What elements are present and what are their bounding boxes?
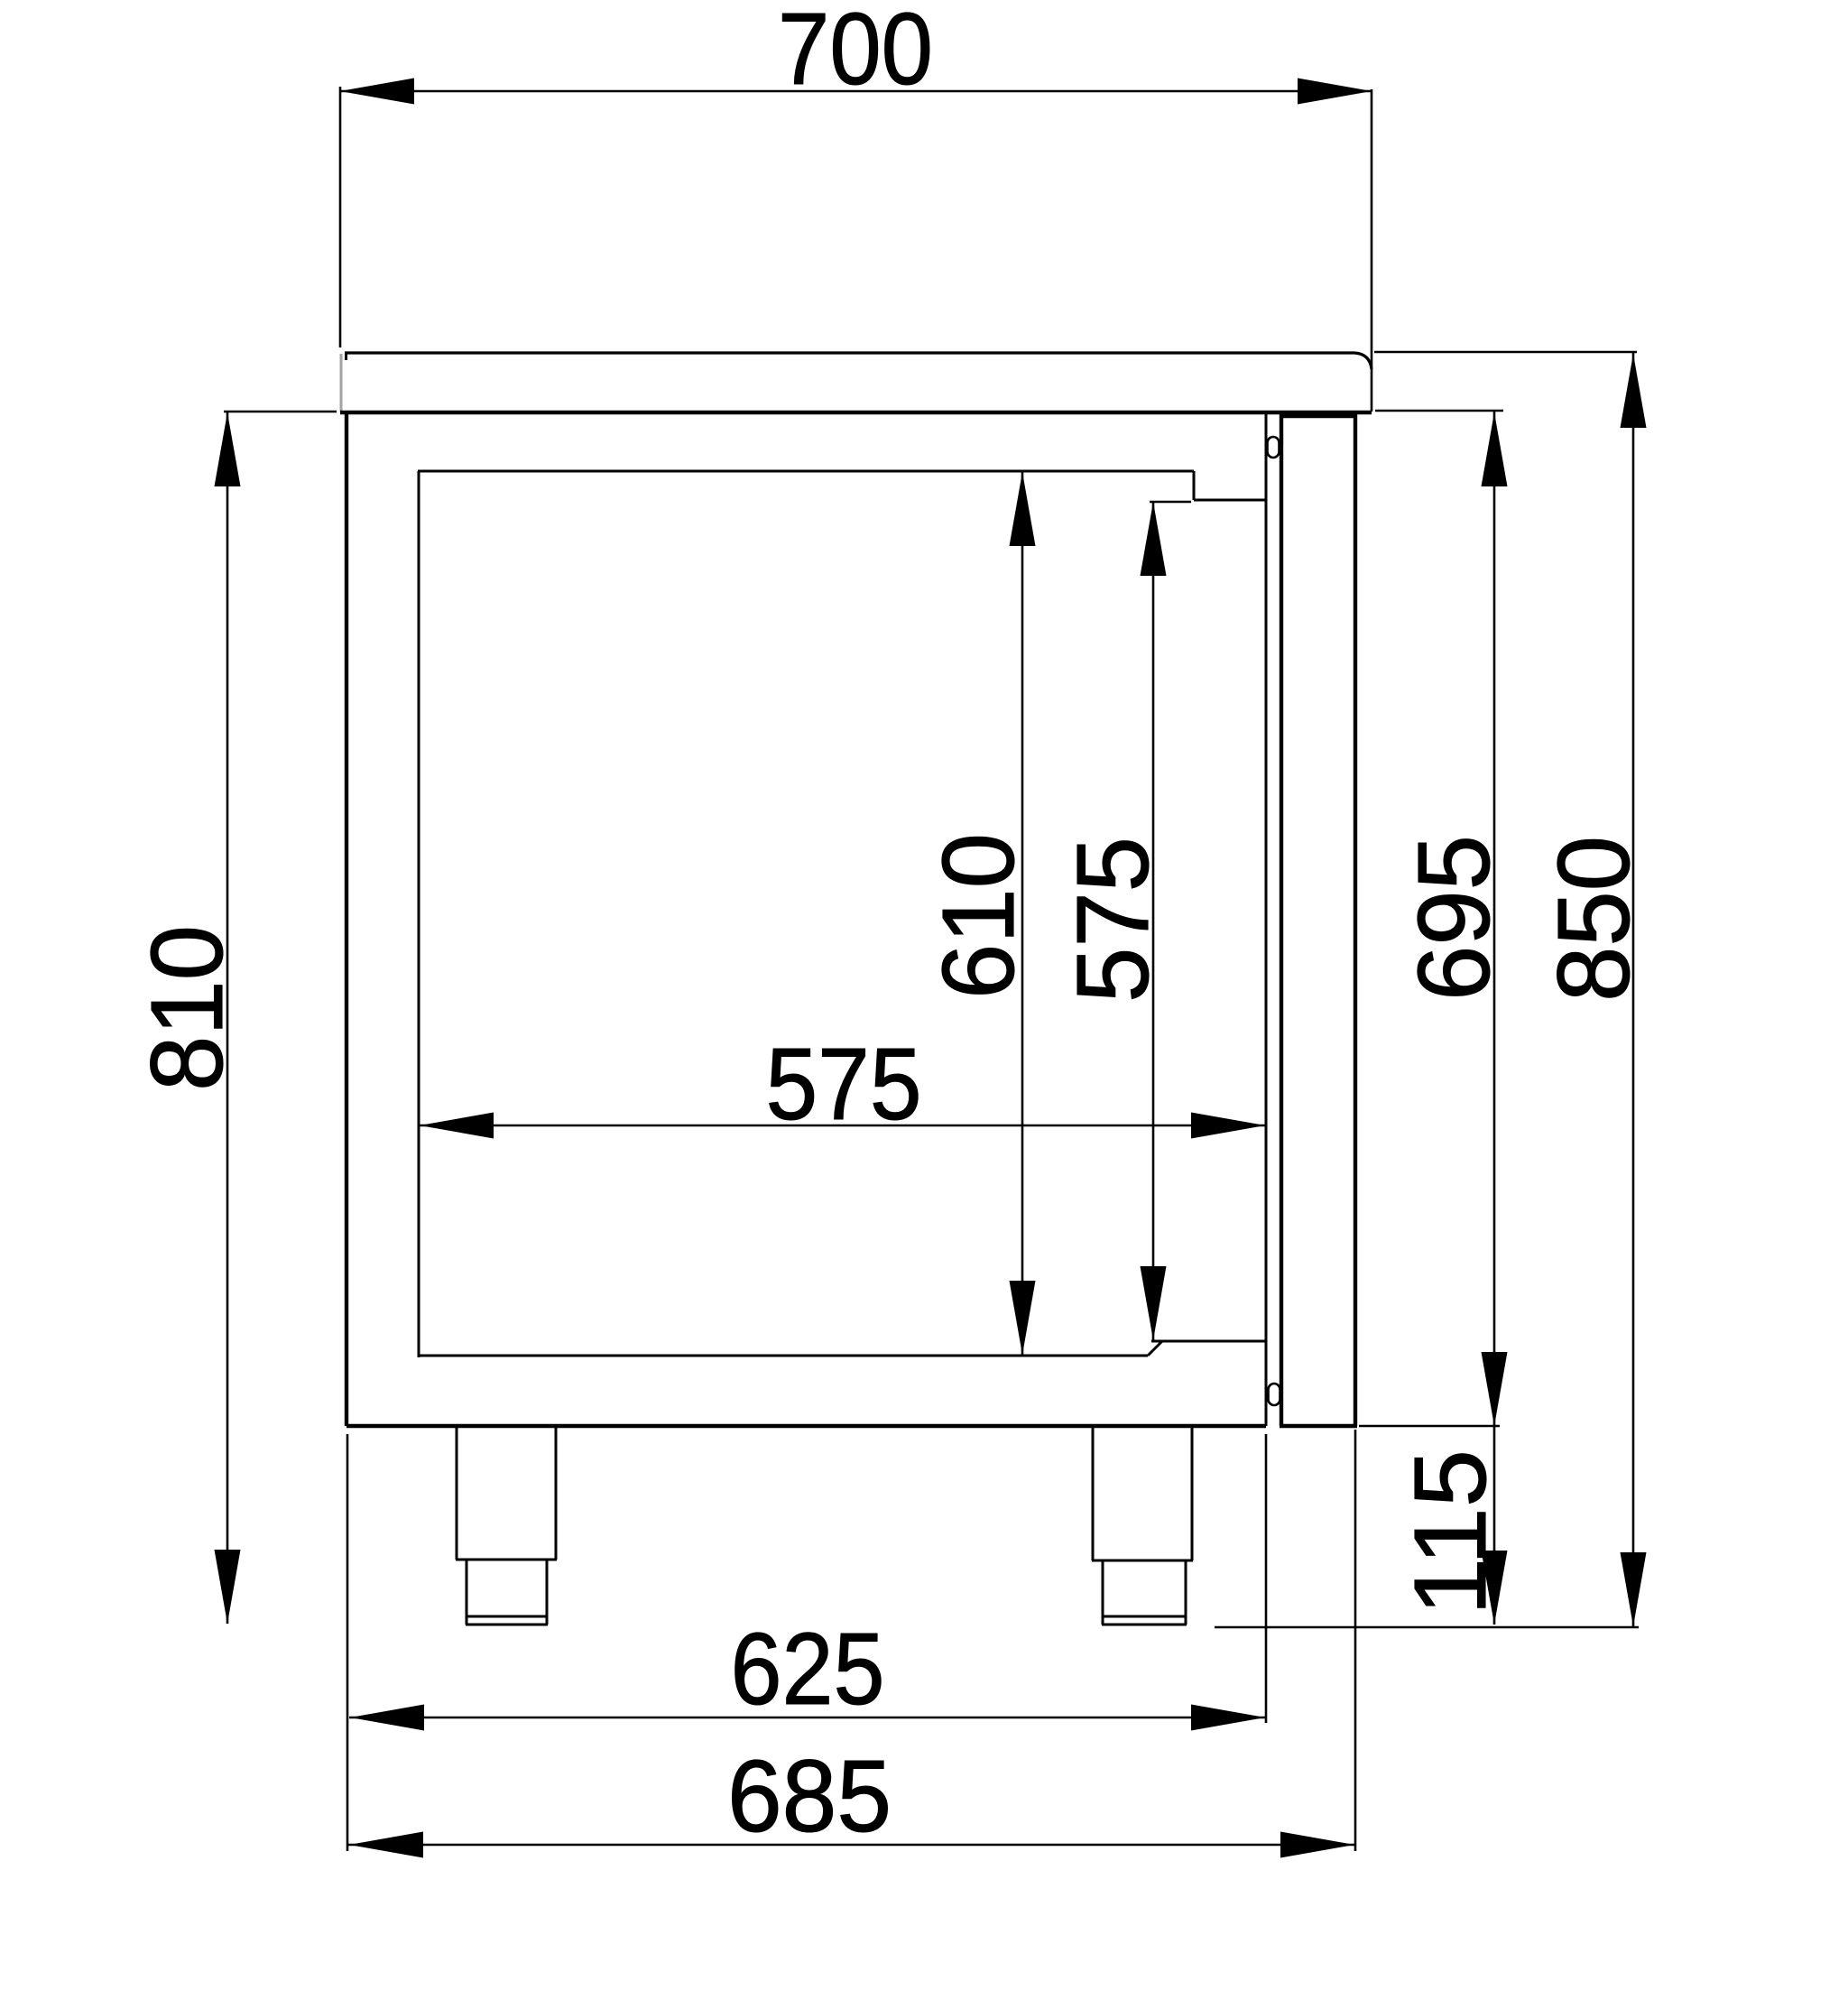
svg-text:115: 115 [1393, 1449, 1507, 1616]
svg-text:575: 575 [1056, 837, 1169, 1003]
svg-text:695: 695 [1397, 835, 1511, 1001]
svg-text:700: 700 [778, 0, 933, 106]
svg-text:850: 850 [1537, 836, 1650, 1002]
svg-text:625: 625 [731, 1612, 885, 1726]
svg-text:685: 685 [727, 1739, 892, 1853]
svg-text:810: 810 [130, 925, 244, 1091]
svg-text:610: 610 [921, 833, 1035, 999]
svg-text:575: 575 [766, 1027, 922, 1141]
